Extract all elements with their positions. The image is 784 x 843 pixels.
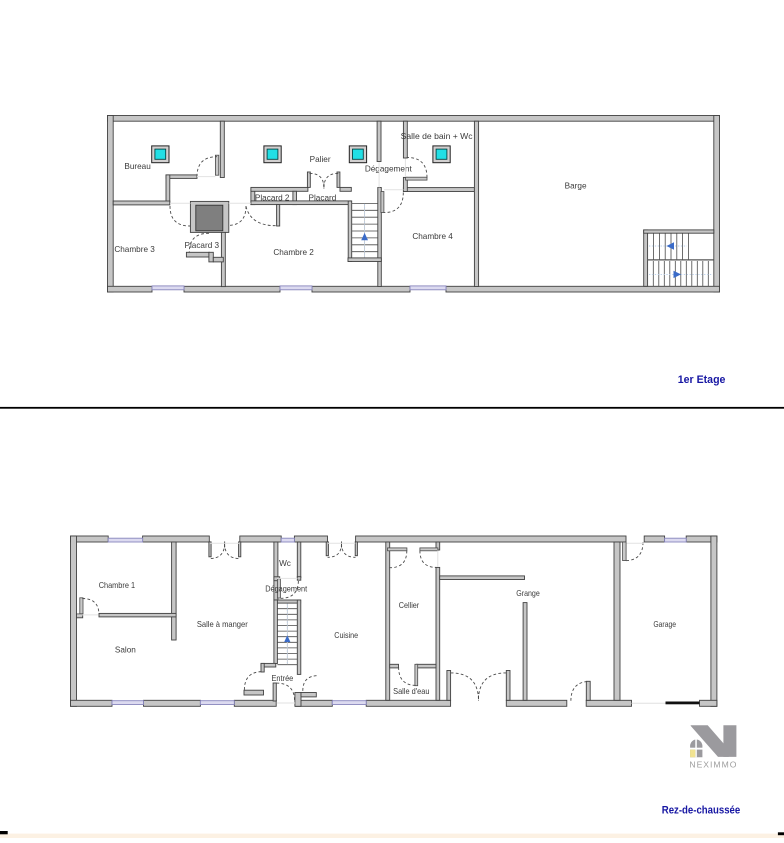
svg-text:Wc: Wc: [279, 559, 291, 568]
svg-text:1er Etage: 1er Etage: [678, 374, 726, 386]
svg-text:Garage: Garage: [653, 620, 676, 629]
svg-text:Placard 2: Placard 2: [255, 194, 290, 203]
svg-text:Grange: Grange: [516, 589, 540, 598]
svg-text:Placard: Placard: [309, 194, 337, 203]
svg-text:NEXIMMO: NEXIMMO: [689, 760, 737, 770]
svg-text:Rez-de-chaussée: Rez-de-chaussée: [662, 804, 741, 816]
svg-text:Palier: Palier: [310, 155, 331, 164]
svg-text:Chambre 3: Chambre 3: [114, 245, 155, 254]
svg-text:Bureau: Bureau: [124, 162, 151, 171]
svg-text:Placard 3: Placard 3: [185, 241, 220, 250]
svg-text:Chambre 4: Chambre 4: [412, 232, 453, 241]
svg-text:Dégagement: Dégagement: [265, 585, 308, 594]
svg-text:Entrée: Entrée: [272, 674, 294, 683]
svg-text:Chambre 1: Chambre 1: [99, 581, 136, 590]
svg-text:Cellier: Cellier: [399, 601, 420, 610]
svg-text:Barge: Barge: [565, 182, 587, 191]
svg-text:Salle d'eau: Salle d'eau: [393, 687, 430, 696]
svg-text:Cuisine: Cuisine: [334, 631, 358, 640]
svg-text:Salon: Salon: [115, 646, 136, 655]
svg-text:Salle de bain + Wc: Salle de bain + Wc: [401, 132, 473, 141]
svg-text:Salle à manger: Salle à manger: [197, 620, 248, 629]
svg-text:Chambre 2: Chambre 2: [273, 248, 314, 257]
